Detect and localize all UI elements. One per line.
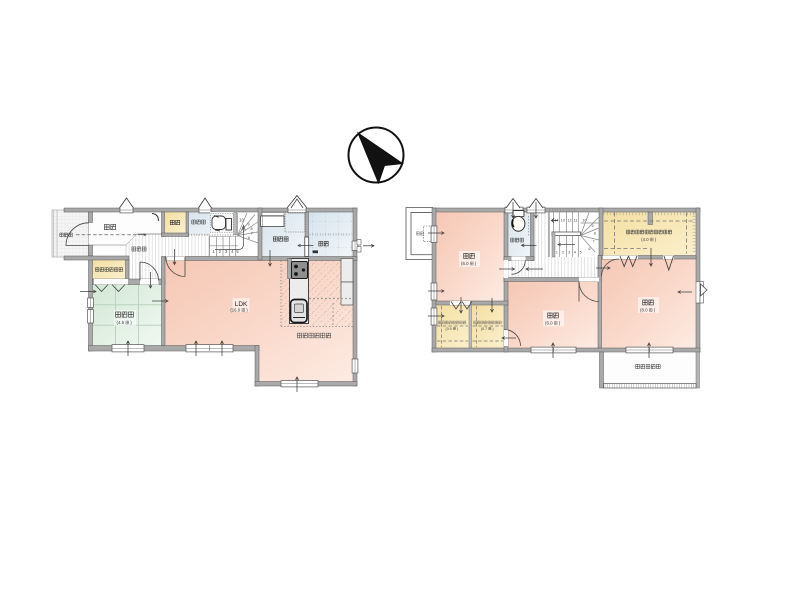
svg-text:(4.5: (4.5	[117, 320, 125, 325]
svg-text:10: 10	[239, 218, 244, 223]
svg-text:6: 6	[248, 236, 250, 240]
svg-text:(0.7: (0.7	[481, 327, 487, 331]
svg-text:1: 1	[556, 251, 558, 255]
svg-text:5: 5	[580, 251, 582, 255]
svg-text:8: 8	[594, 232, 596, 236]
svg-text:13: 13	[561, 219, 565, 223]
svg-text:10: 10	[582, 219, 586, 223]
svg-text:11: 11	[574, 219, 578, 223]
svg-text:(6.0: (6.0	[461, 261, 469, 266]
svg-text:6: 6	[589, 247, 591, 251]
svg-text:): )	[492, 327, 493, 331]
svg-text:(0.9: (0.9	[446, 327, 452, 331]
svg-text:(8.0: (8.0	[640, 308, 648, 313]
svg-text:3: 3	[568, 251, 570, 255]
svg-text:4: 4	[574, 251, 576, 255]
svg-text:(16.0: (16.0	[230, 308, 240, 313]
svg-text:2: 2	[562, 251, 564, 255]
svg-text:8: 8	[250, 227, 252, 231]
svg-text:(4.0: (4.0	[641, 237, 649, 242]
svg-text:(6.0: (6.0	[545, 321, 553, 326]
svg-text:9: 9	[592, 224, 594, 228]
svg-text:): )	[457, 327, 458, 331]
svg-text:7: 7	[251, 232, 253, 236]
svg-text:9: 9	[247, 223, 249, 227]
svg-text:7: 7	[593, 240, 595, 244]
svg-text:12: 12	[568, 219, 572, 223]
